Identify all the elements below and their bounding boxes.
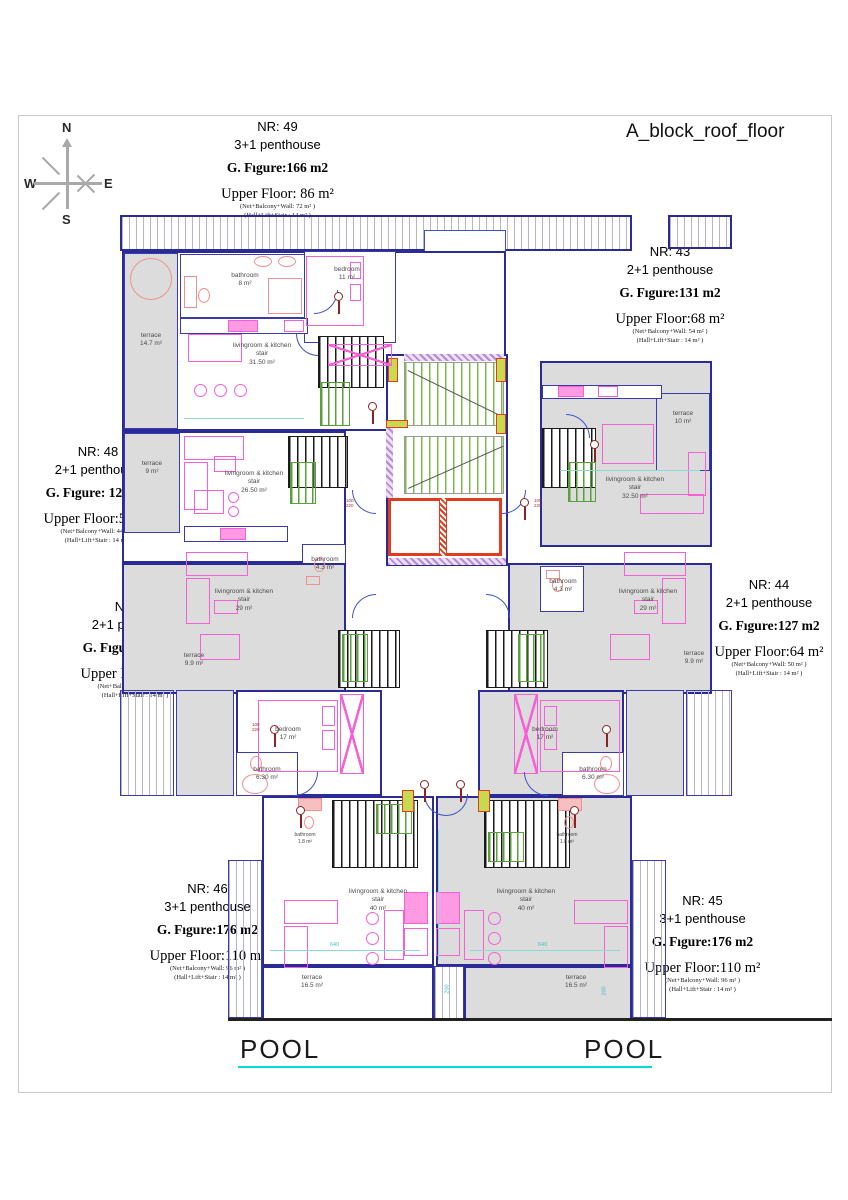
room-label-bathroom-nr44: bathroom4.3 m² — [534, 578, 592, 595]
door-marker-stem — [524, 507, 526, 520]
figure-label: G. Fıgure:131 m2 — [585, 285, 755, 301]
fridge-icon — [598, 386, 618, 397]
sink-icon — [278, 256, 296, 267]
roof-hatch-right-mid — [686, 690, 732, 796]
room-label-terrace-nr45: terrace16.5 m² — [542, 974, 610, 991]
terrace-strip-right-mid — [626, 690, 684, 796]
roof-hatch-top — [120, 215, 632, 251]
kitchen-unit — [436, 928, 460, 956]
chair — [366, 952, 379, 965]
apartment-info-nr-49: NR: 49 3+1 penthouse G. Fıgure:166 m2 Up… — [195, 118, 360, 221]
sofa — [284, 900, 338, 924]
nr-label: NR: 44 — [700, 576, 838, 594]
door-marker-icon — [590, 440, 599, 449]
type-label: 3+1 penthouse — [195, 136, 360, 154]
upper-floor-label: Upper Floor:68 m² — [585, 311, 755, 328]
figure-label: G. Fıgure:166 m2 — [195, 160, 360, 176]
room-label-terrace-nr44: terrace9.9 m² — [660, 650, 728, 667]
room-label-bathroom-630-right: bathroom6.30 m² — [560, 766, 626, 783]
sink-icon — [184, 276, 197, 308]
dimension-line — [560, 470, 700, 471]
room-label-bedroom-nr49: bedroom11 m² — [312, 266, 382, 283]
nr-label: NR: 49 — [195, 118, 360, 136]
dimension-line — [270, 950, 420, 951]
door-marker-icon — [456, 780, 465, 789]
dimension-line — [184, 418, 304, 419]
room-label-bedroom-left: bedroom17 m² — [253, 726, 323, 743]
kitchen-unit — [404, 928, 428, 956]
stair-nr49-lower — [320, 382, 350, 426]
dimension-line — [438, 830, 439, 960]
door-marker-icon — [368, 402, 377, 411]
room-label-living-nr43: livingroom & kitchenstair32.50 m² — [592, 476, 678, 501]
room-label-terrace-nr46: terrace16.5 m² — [278, 974, 346, 991]
toilet-icon — [564, 816, 574, 829]
landing-block-bottom-left — [402, 790, 414, 812]
door-marker-stem — [338, 301, 340, 314]
stair-nr44-lower — [518, 634, 544, 682]
door-marker-icon — [420, 780, 429, 789]
landing-block-bottom-right — [478, 790, 490, 812]
sink-icon — [254, 256, 272, 267]
dimension-label: 640 — [538, 942, 547, 948]
chair — [366, 912, 379, 925]
door-marker-stem — [372, 411, 374, 424]
chair — [488, 912, 501, 925]
door-marker-stem — [606, 734, 608, 747]
door-marker-icon — [570, 806, 579, 815]
core-landing-block-3 — [496, 414, 506, 434]
dimension-label: 200 — [445, 984, 451, 993]
roof-hatch-bottom-left — [228, 860, 262, 1018]
chair — [228, 506, 239, 517]
room-label-bathroom-nr49: bathroom8 m² — [210, 272, 280, 289]
chair — [488, 952, 501, 965]
compass-east-label: E — [104, 176, 113, 191]
compass-rose: N S W E — [22, 118, 122, 230]
room-label-living-nr48: livingroom & kitchenstair26.50 m² — [212, 470, 296, 495]
type-label: 2+1 penthouse — [700, 594, 838, 612]
detail-net-label: (Net+Balcony+Wall: 54 m² ) — [585, 328, 755, 337]
core-landing-block-2 — [496, 358, 506, 382]
room-label-bathroom-nr48: bathroom4.3 m² — [296, 556, 354, 573]
door-marker-icon — [520, 498, 529, 507]
door-marker-icon — [602, 725, 611, 734]
door-marker-icon — [296, 806, 305, 815]
sofa — [574, 900, 628, 924]
door-marker-stem — [594, 449, 596, 462]
upper-floor-label: Upper Floor: 86 m² — [195, 186, 360, 203]
door-marker-icon — [334, 292, 343, 301]
roof-hatch-bottom-right — [632, 860, 666, 1018]
chair — [488, 932, 501, 945]
chair — [194, 384, 207, 397]
room-label-living-nr45: livingroom & kitchenstair40 m² — [486, 888, 566, 913]
dining-table — [610, 634, 650, 660]
door-size-tag: 100 220 — [534, 498, 542, 509]
stair-nr47-lower — [342, 634, 368, 682]
stove-icon — [558, 386, 584, 397]
kitchen-unit — [436, 892, 460, 924]
room-label-living-nr46: livingroom & kitchenstair40 m² — [338, 888, 418, 913]
pool-label-left: POOL — [240, 1034, 320, 1065]
drawing-title: A_block_roof_floor — [626, 121, 784, 143]
toilet-icon — [198, 288, 210, 303]
pool-edge-line — [238, 1066, 652, 1068]
detail-net-label: (Net+Balcony+Wall: 72 m² ) — [195, 203, 360, 212]
door-marker-stem — [460, 789, 462, 802]
core-landing-block-4 — [386, 420, 408, 428]
compass-north-label: N — [62, 120, 71, 135]
compass-diagonal-sw — [42, 192, 60, 210]
washer-icon — [130, 258, 172, 300]
pillow — [350, 284, 361, 301]
roof-hatch-left-mid — [120, 690, 174, 796]
room-label-bathroom-18-right: bathroom1.8 m² — [544, 832, 590, 845]
room-label-bathroom-630-left: bathroom6.30 m² — [234, 766, 300, 783]
compass-diagonal-nw — [42, 157, 60, 175]
pillow — [322, 730, 335, 750]
stove-icon — [228, 320, 258, 332]
dimension-label: 640 — [330, 942, 339, 948]
dining-table — [602, 424, 654, 464]
stove-icon — [220, 528, 246, 540]
pool-label-right: POOL — [584, 1034, 664, 1065]
sofa — [688, 452, 706, 496]
room-label-living-nr49: livingroom & kitchenstair31.50 m² — [222, 342, 302, 367]
room-label-living-nr47: livingroom & kitchenstair29 m² — [202, 588, 286, 613]
core-wall-left — [386, 426, 393, 498]
dining-table — [464, 910, 484, 960]
room-label-terrace-nr47: terrace9.9 m² — [160, 652, 228, 669]
elevator-divider-wall — [440, 498, 446, 556]
apartment-info-nr-43: NR: 43 2+1 penthouse G. Fıgure:131 m2 Up… — [585, 243, 755, 346]
toilet-icon — [304, 816, 314, 829]
terrace-nr48 — [124, 433, 180, 533]
fridge-icon — [284, 320, 304, 332]
sofa — [604, 926, 628, 968]
sofa — [624, 552, 686, 576]
room-label-bathroom-18-left: bathroom1.8 m² — [282, 832, 328, 845]
compass-south-label: S — [62, 212, 71, 227]
floor-plan-page: { "sheet": { "title": "A_block_roof_floo… — [0, 0, 848, 1200]
pillow — [322, 706, 335, 726]
room-label-bedroom-right: bedroom17 m² — [510, 726, 580, 743]
sofa — [186, 552, 248, 576]
core-wall-bottom — [388, 558, 506, 565]
plan-base-line — [228, 1018, 832, 1021]
pillow — [544, 706, 557, 726]
stair-nr45-lower — [488, 832, 524, 862]
door-size-tag: 100 220 — [346, 498, 354, 509]
room-label-living-nr44: livingroom & kitchenstair29 m² — [606, 588, 690, 613]
core-wall-top — [404, 354, 504, 361]
compass-we-bar — [34, 182, 102, 185]
door-marker-stem — [300, 815, 302, 828]
core-stair-lower — [404, 436, 504, 494]
wardrobe — [340, 694, 364, 774]
room-label-terrace-nr48: terrace9 m² — [122, 460, 182, 477]
type-label: 2+1 penthouse — [585, 261, 755, 279]
sink-icon — [306, 576, 320, 585]
wardrobe — [328, 344, 392, 366]
chair — [214, 384, 227, 397]
detail-hall-label: (Hall+Lift+Stair : 14 m² ) — [585, 337, 755, 346]
sofa — [284, 926, 308, 968]
detail-hall-label: (Hall+Lift+Stair : 14 m² ) — [700, 670, 838, 679]
elevator-shaft-right — [444, 498, 502, 556]
door-marker-stem — [574, 815, 576, 828]
figure-label: G. Fıgure:127 m2 — [700, 618, 838, 634]
elevator-shaft-left — [388, 498, 442, 556]
room-label-terrace-nr49: terrace14.7 m² — [117, 332, 185, 349]
terrace-strip-left-mid — [176, 690, 234, 796]
door-marker-stem — [424, 789, 426, 802]
dimension-line — [470, 950, 620, 951]
compass-needle-icon — [62, 138, 72, 147]
roof-hatch-top-right — [668, 215, 732, 249]
dining-table — [384, 910, 404, 960]
chair — [234, 384, 247, 397]
room-label-terrace-nr43: terrace10 m² — [656, 410, 710, 427]
compass-ns-bar — [66, 147, 69, 209]
chair — [366, 932, 379, 945]
